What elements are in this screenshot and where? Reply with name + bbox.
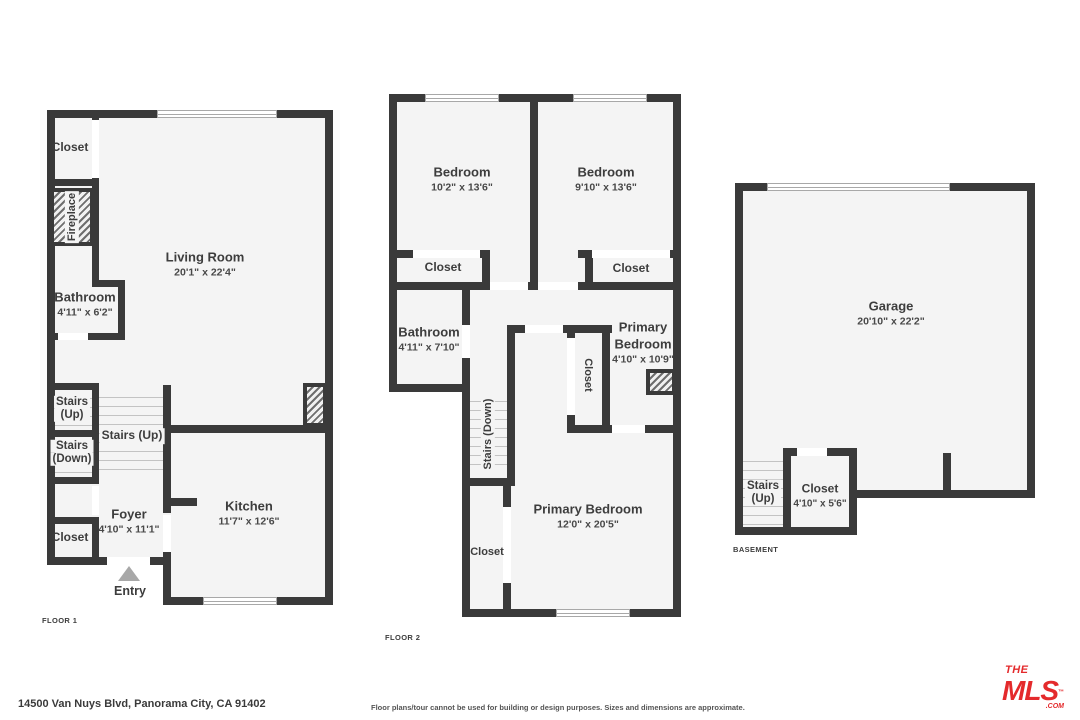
room-label-kitchen: Kitchen11'7" x 12'6" [218,499,279,530]
wall [163,385,171,513]
wall [462,478,515,486]
window [573,94,647,102]
wall [92,383,99,437]
wall [47,477,99,484]
room-label-stairs-up: Stairs(Up) [745,480,781,506]
wall [47,179,99,186]
entry-opening [107,557,150,565]
door-opening [490,282,528,290]
window [425,94,499,102]
door-opening [503,507,511,583]
room-label-closet: Closet [425,260,462,276]
floor-tag: BASEMENT [733,545,778,554]
fireplace-hatch [646,369,676,395]
wall [783,448,791,535]
room-label-stairs-down: Stairs (Down) [481,397,495,472]
wall [389,94,397,392]
door-opening [797,448,827,456]
door-opening [58,333,88,340]
floor-tag: FLOOR 1 [42,616,77,625]
room-label-bathroom: Bathroom4'11" x 7'10" [398,325,459,356]
door-opening [538,282,578,290]
room-label-stairs-down: Stairs(Down) [51,440,94,466]
room-label-entry: Entry [114,583,146,599]
disclaimer-text: Floor plans/tour cannot be used for buil… [371,703,745,712]
room-label-stairs-main: Stairs (Up) [100,428,165,444]
wall [462,384,470,617]
garage-door-opening [767,183,950,191]
door-opening [92,120,99,178]
entry-arrow-icon [118,566,140,581]
room-label-bedroom: Bedroom9'10" x 13'6" [575,165,637,196]
room-label-closet: Closet [52,140,89,156]
wall [507,325,515,482]
door-opening [413,250,480,258]
room-label-primary-bedroom: Primary Bedroom12'0" x 20'5" [533,502,642,533]
wall [325,110,333,605]
wall [389,282,681,290]
wall [735,527,857,535]
room-label-living-room: Living Room20'1" x 22'4" [166,250,245,281]
room-label-closet: Closet [581,356,595,394]
room-label-bathroom: Bathroom4'11" x 6'2" [54,290,115,321]
room-label-closet: Closet [52,530,89,546]
door-opening [462,325,470,358]
room-label-stairs-up: Stairs(Up) [54,396,90,422]
property-address: 14500 Van Nuys Blvd, Panorama City, CA 9… [18,698,266,710]
room-label-closet: Closet [470,545,504,559]
fireplace-hatch [303,383,327,427]
wall [171,498,197,506]
door-opening [592,250,670,258]
wall [849,490,1035,498]
room-label-garage: Garage20'10" x 22'2" [857,299,925,330]
door-opening [567,338,575,415]
wall [118,280,125,340]
wall [163,552,171,605]
floorplan-page: Closet Fireplace Living Room20'1" x 22'4… [0,0,1080,720]
door-opening [163,515,171,552]
logo-trademark: ™ [1058,690,1064,696]
room-label-closet: Closet4'10" x 5'6" [793,482,846,511]
window [157,110,277,118]
wall [849,448,857,535]
room-label-fireplace: Fireplace [65,191,79,243]
themls-logo: THE MLS™ .COM [1002,661,1064,710]
room-label-bedroom: Bedroom10'2" x 13'6" [431,165,493,196]
floor-tag: FLOOR 2 [385,633,420,642]
wall [389,384,470,392]
door-opening [525,325,563,333]
room-label-foyer: Foyer4'10" x 11'1" [98,507,159,538]
wall [943,453,951,498]
room-label-closet: Closet [613,261,650,277]
door-opening [612,425,645,433]
wall [735,183,743,535]
wall [1027,183,1035,498]
logo-mls-text: MLS [1002,675,1058,706]
wall [530,94,538,290]
room-label-primary-bedroom: Primary Bedroom4'10" x 10'9" [599,319,687,366]
window [203,597,277,605]
window [556,609,630,617]
